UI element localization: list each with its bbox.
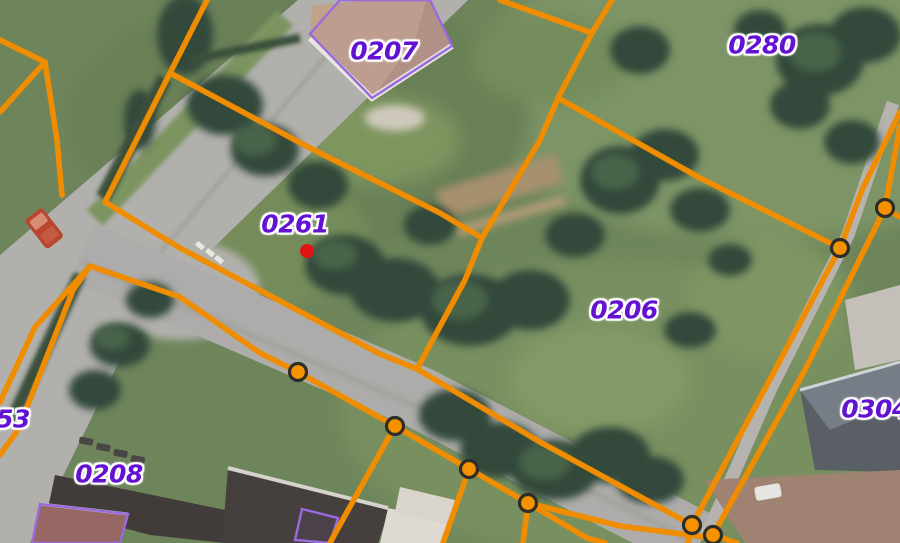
map-canvas[interactable]: 02070280026102060304020853 <box>0 0 900 543</box>
parcel-boundary-line <box>105 202 692 525</box>
cadastral-overlay <box>0 0 900 543</box>
parcel-boundary-line <box>443 469 469 543</box>
boundary-vertex-marker[interactable] <box>684 517 701 534</box>
parcel-boundary-line <box>692 112 900 525</box>
boundary-vertex-marker[interactable] <box>705 527 722 543</box>
parcel-boundary-line <box>0 40 45 62</box>
parcel-boundary-line <box>170 0 207 73</box>
building-outline <box>32 504 128 543</box>
selected-parcel-marker[interactable] <box>300 244 314 258</box>
parcel-boundary-line <box>417 0 612 369</box>
building-outline <box>310 0 452 98</box>
boundary-vertex-marker[interactable] <box>832 240 849 257</box>
parcel-boundary-line <box>170 73 482 238</box>
parcel-boundary-line <box>0 62 45 112</box>
parcel-boundary-line <box>45 62 62 195</box>
parcel-boundary-line <box>330 426 395 543</box>
parcel-boundary-line <box>105 73 170 202</box>
parcel-boundary-line <box>90 266 705 537</box>
boundary-vertex-marker[interactable] <box>520 495 537 512</box>
parcel-boundary-line <box>558 98 840 248</box>
parcel-boundary-line <box>713 126 900 535</box>
parcel-boundary-line <box>528 503 605 543</box>
boundary-vertex-marker[interactable] <box>461 461 478 478</box>
boundary-vertex-marker[interactable] <box>290 364 307 381</box>
parcel-boundary-line <box>500 0 592 33</box>
boundary-vertex-marker[interactable] <box>387 418 404 435</box>
parcel-boundary-line <box>0 266 90 455</box>
boundary-vertex-marker[interactable] <box>877 200 894 217</box>
